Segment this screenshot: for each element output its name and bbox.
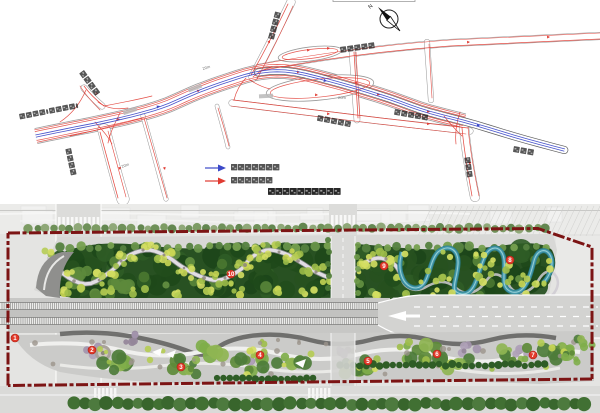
svg-text:3: 3 [179, 364, 183, 371]
svg-text:7: 7 [531, 352, 535, 359]
svg-text:5: 5 [366, 358, 370, 365]
svg-text:9: 9 [382, 263, 386, 270]
svg-text:8: 8 [508, 257, 512, 264]
svg-text:6: 6 [435, 351, 439, 358]
svg-text:2: 2 [90, 347, 94, 354]
svg-text:1: 1 [13, 335, 17, 342]
svg-text:20m: 20m [338, 95, 346, 100]
svg-text:10: 10 [228, 271, 235, 278]
svg-text:4: 4 [258, 352, 262, 359]
